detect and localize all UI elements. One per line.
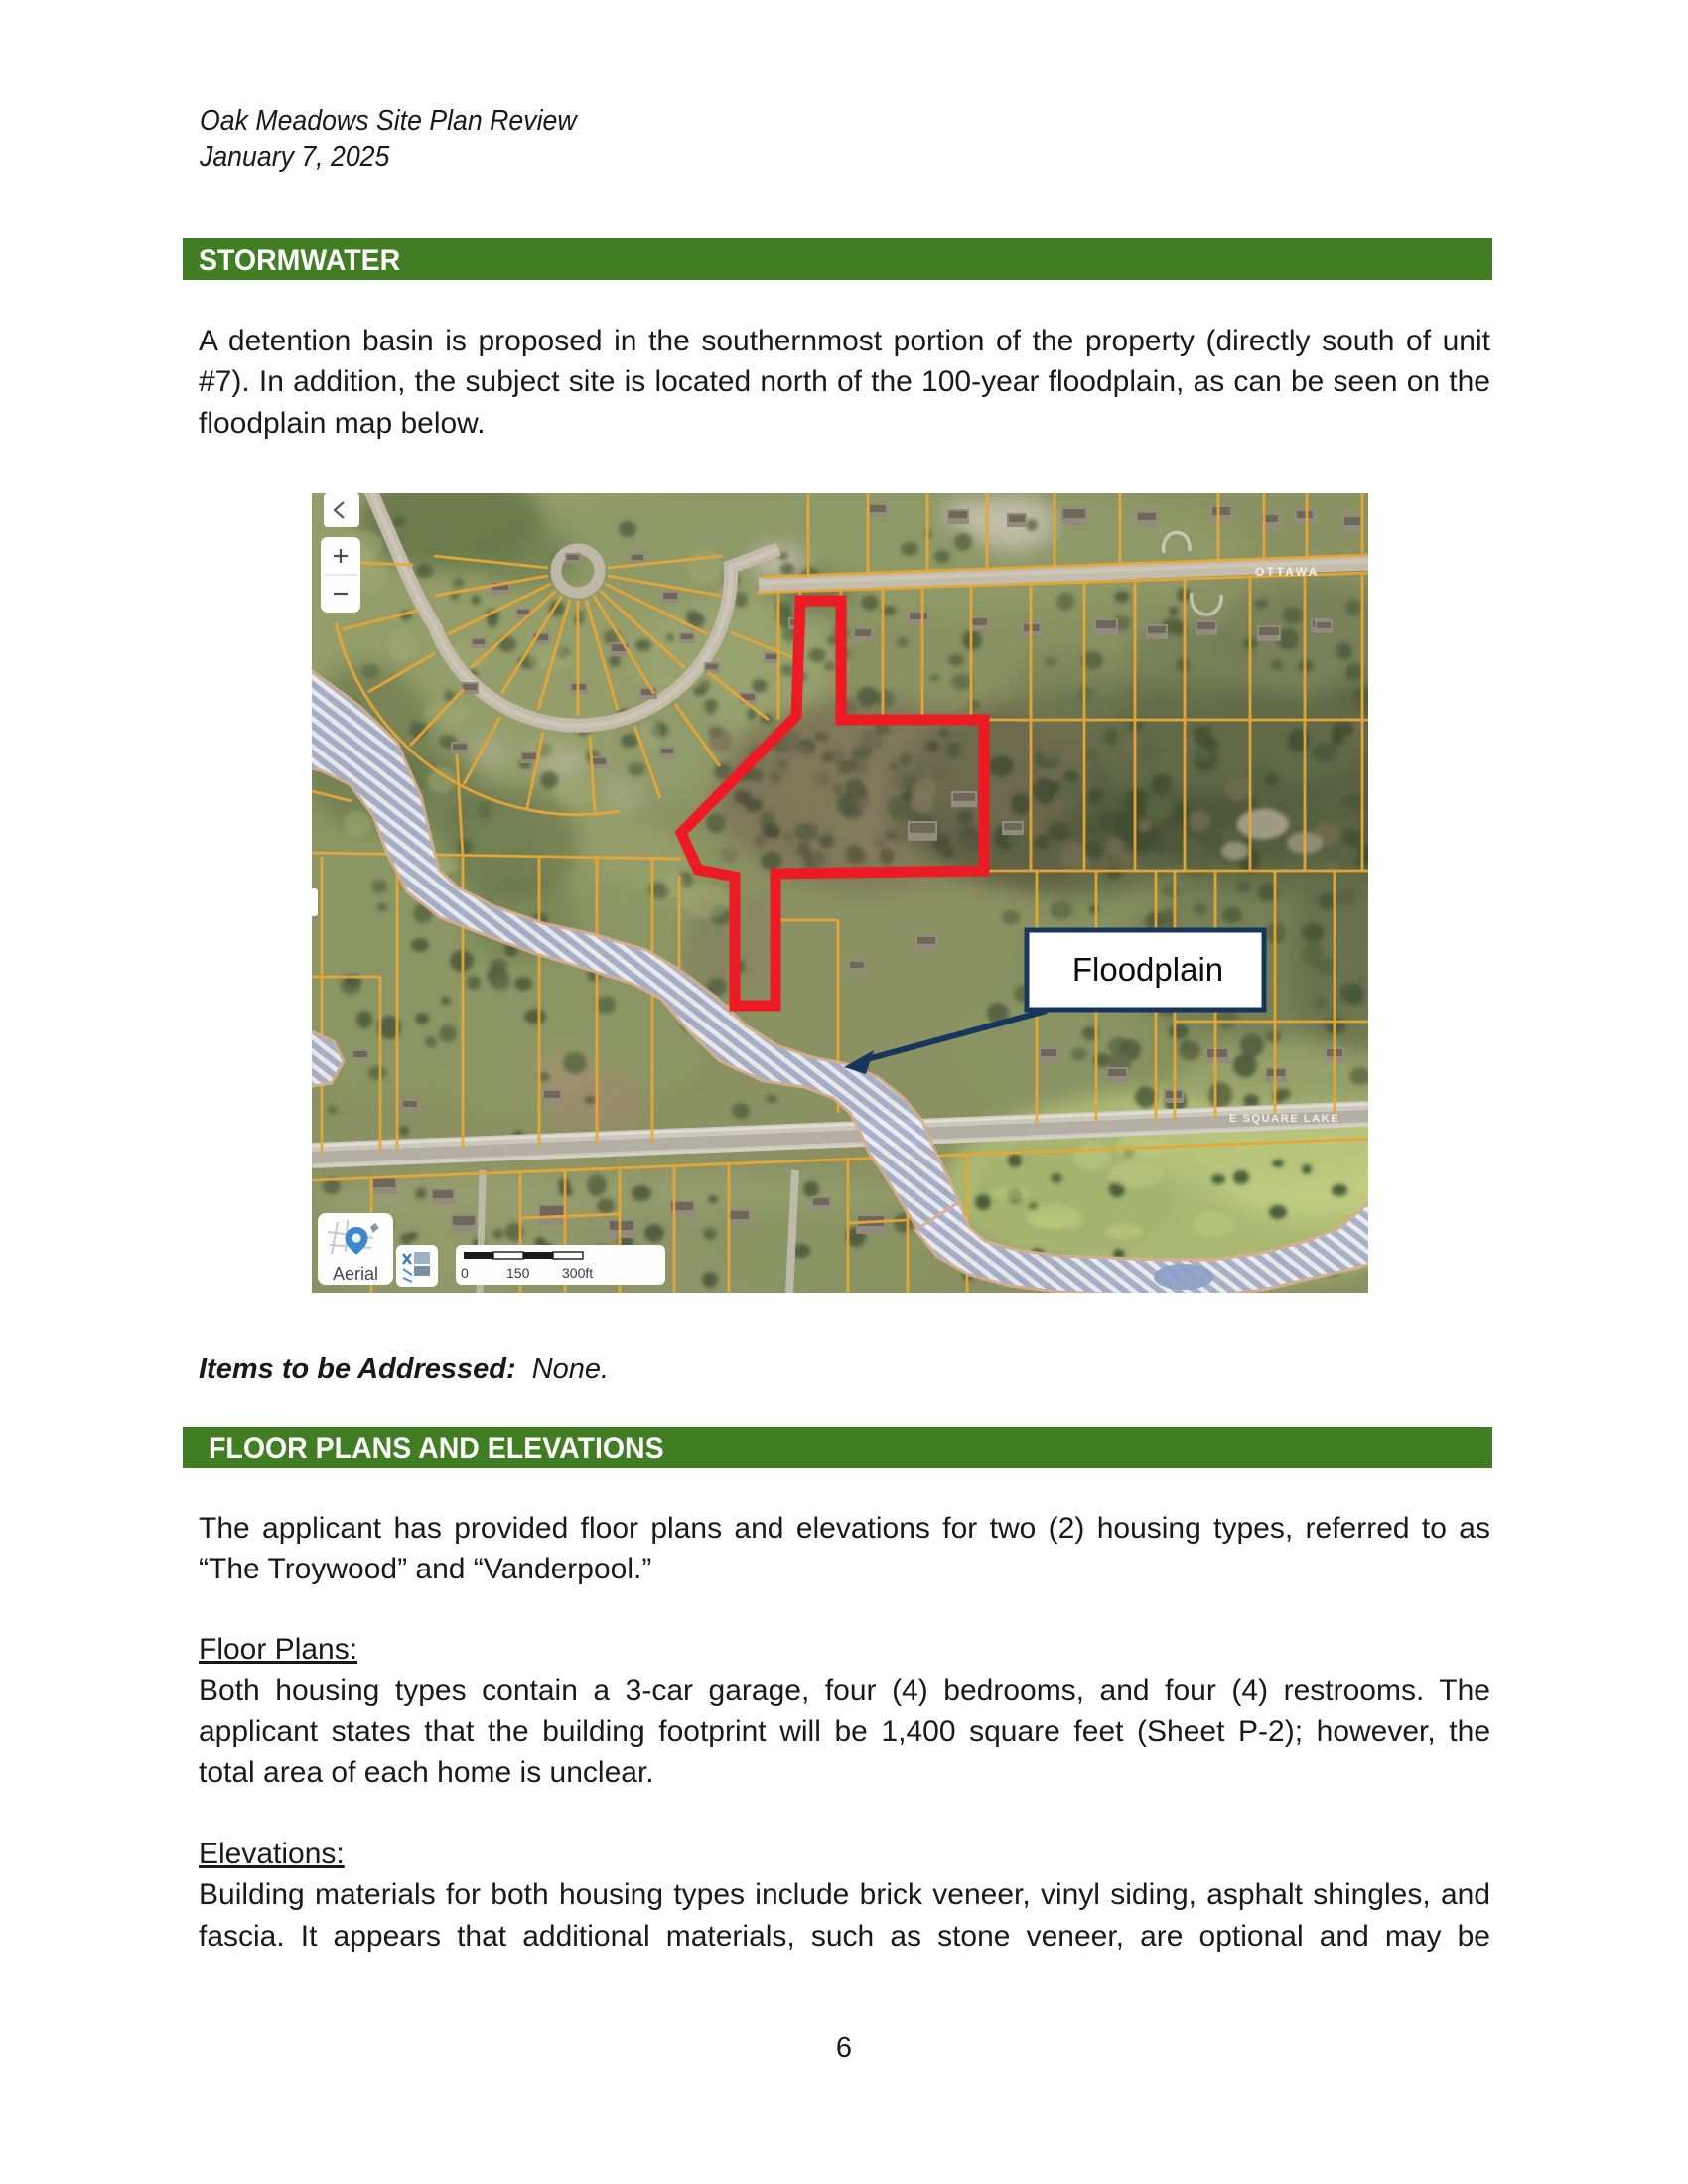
svg-text:150: 150 xyxy=(506,1265,530,1281)
svg-text:E SQUARE LAKE: E SQUARE LAKE xyxy=(1229,1113,1339,1125)
svg-text:Floodplain: Floodplain xyxy=(1072,951,1223,988)
svg-text:OTTAWA: OTTAWA xyxy=(1255,565,1320,579)
svg-text:Aerial: Aerial xyxy=(333,1264,378,1284)
svg-text:300ft: 300ft xyxy=(562,1265,593,1281)
svg-text:0: 0 xyxy=(461,1265,469,1281)
